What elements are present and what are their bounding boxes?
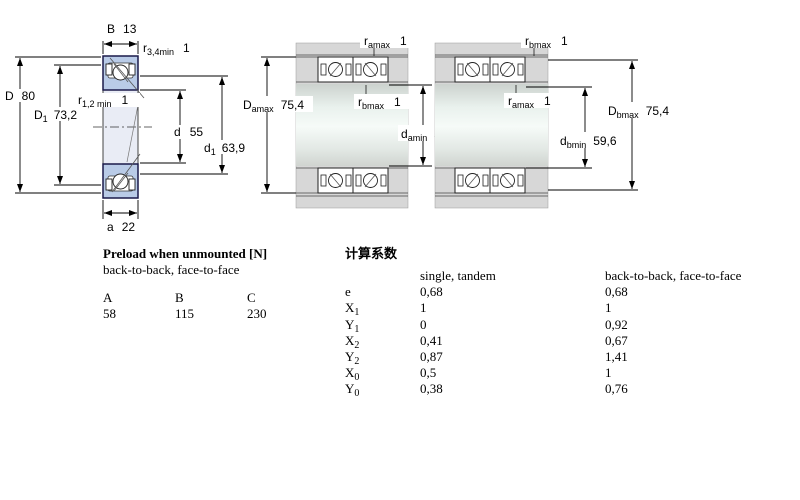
factor-row-label: X0 bbox=[345, 365, 420, 381]
factor-value: 1 bbox=[605, 300, 790, 316]
factors-col1-header: single, tandem bbox=[420, 268, 605, 284]
preload-value: 230 bbox=[247, 306, 327, 322]
dim-label-a: a22 bbox=[107, 220, 135, 234]
calculation-factors-table: 计算系数 single, tandem back-to-back, face-t… bbox=[345, 246, 790, 398]
dim-label-D1: D173,2 bbox=[34, 108, 77, 124]
bearing-pair-top bbox=[318, 57, 388, 82]
factor-value: 0 bbox=[420, 317, 605, 333]
dim-label-B: B13 bbox=[107, 22, 137, 36]
preload-title: Preload when unmounted [N] bbox=[103, 246, 333, 262]
preload-value: 58 bbox=[103, 306, 175, 322]
factors-col2-header: back-to-back, face-to-face bbox=[605, 268, 790, 284]
factor-value: 0,92 bbox=[605, 317, 790, 333]
factor-row-label: Y1 bbox=[345, 317, 420, 333]
technical-drawings: B13 r3,4min1 D80 D173,2 r1,2 min1 d55 d1… bbox=[0, 0, 800, 245]
face-to-face-arrangement-diagram: rbmax1 ramax1 Dbmax75,4 dbmin59,6 bbox=[435, 34, 677, 208]
preload-col-header: C bbox=[247, 290, 327, 306]
factor-value: 0,68 bbox=[420, 284, 605, 300]
bearing-datasheet-page: B13 r3,4min1 D80 D173,2 r1,2 min1 d55 d1… bbox=[0, 0, 800, 500]
factors-title: 计算系数 bbox=[345, 246, 790, 262]
factor-value: 0,68 bbox=[605, 284, 790, 300]
factor-row-label: Y0 bbox=[345, 381, 420, 397]
back-to-back-arrangement-diagram: ramax1 rbmax1 Damax75,4 damin59,6 bbox=[240, 34, 467, 208]
factor-value: 0,41 bbox=[420, 333, 605, 349]
factor-row-label: e bbox=[345, 284, 420, 300]
bearing-pair-top bbox=[455, 57, 525, 82]
preload-col-header: A bbox=[103, 290, 175, 306]
factor-value: 0,76 bbox=[605, 381, 790, 397]
preload-subtitle: back-to-back, face-to-face bbox=[103, 262, 333, 278]
factor-value: 0,5 bbox=[420, 365, 605, 381]
dim-label-d1: d163,9 bbox=[204, 141, 245, 157]
factor-row-label: X1 bbox=[345, 300, 420, 316]
preload-value: 115 bbox=[175, 306, 247, 322]
factor-row-label: X2 bbox=[345, 333, 420, 349]
factor-value: 0,38 bbox=[420, 381, 605, 397]
factor-value: 1,41 bbox=[605, 349, 790, 365]
factor-value: 1 bbox=[420, 300, 605, 316]
factor-row-label: Y2 bbox=[345, 349, 420, 365]
bearing-cross-section-diagram: B13 r3,4min1 D80 D173,2 r1,2 min1 d55 d1… bbox=[2, 22, 251, 234]
dim-label-r34min: r3,4min1 bbox=[143, 41, 190, 57]
bearing-pair-bottom bbox=[455, 168, 525, 193]
factor-value: 0,87 bbox=[420, 349, 605, 365]
preload-table: Preload when unmounted [N] back-to-back,… bbox=[103, 246, 333, 322]
bearing-pair-bottom bbox=[318, 168, 388, 193]
preload-col-header: B bbox=[175, 290, 247, 306]
factor-value: 0,67 bbox=[605, 333, 790, 349]
factor-value: 1 bbox=[605, 365, 790, 381]
factors-empty-header bbox=[345, 268, 420, 284]
